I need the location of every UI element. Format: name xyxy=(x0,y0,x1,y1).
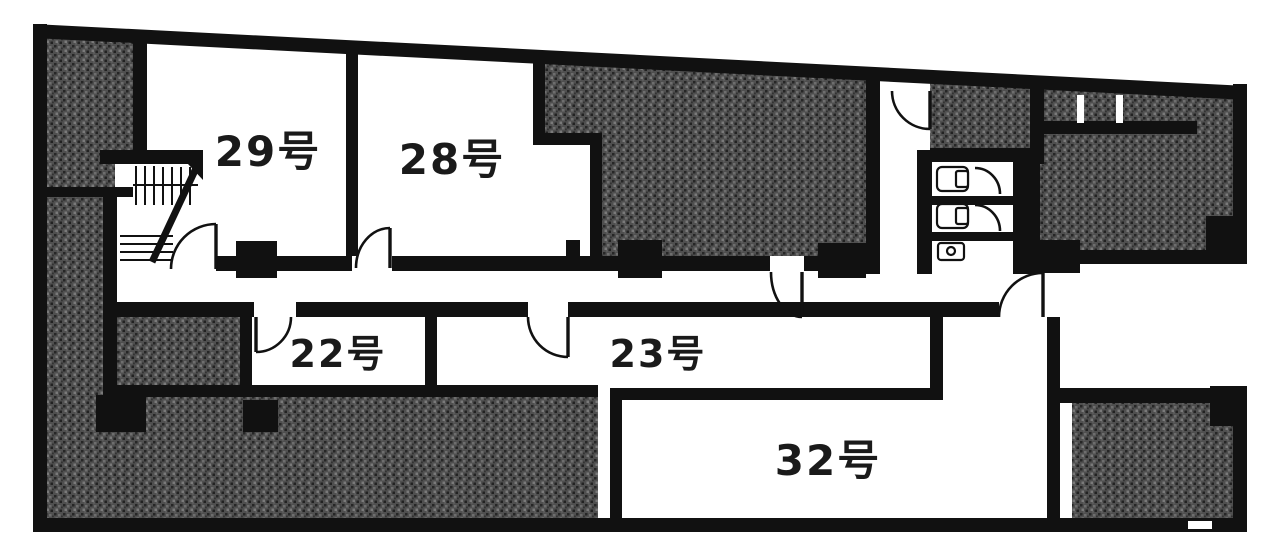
wall-28-right-upper xyxy=(533,57,545,143)
toilet-tank-1 xyxy=(956,171,968,187)
corridor-top-wall xyxy=(216,256,866,271)
wall-room29-left xyxy=(133,40,147,154)
pillar-bottomleft-2 xyxy=(243,400,278,432)
wall-28-right-lower xyxy=(590,133,602,258)
opening-corridor-mid xyxy=(770,256,804,271)
wall-left-column xyxy=(103,197,117,397)
room-23-label: 23号 xyxy=(610,335,707,373)
wall-below-hatch-topleft xyxy=(33,187,133,197)
toilet-fixtures xyxy=(937,167,968,260)
window-slit-2 xyxy=(1116,95,1123,123)
room-29-label: 29号 xyxy=(215,131,321,173)
hatch-bottom-right xyxy=(1072,403,1233,518)
wall-29-28 xyxy=(346,48,358,258)
pillar-bottomleft-1 xyxy=(96,395,146,432)
hatch-left-column xyxy=(47,197,103,518)
opening-room22 xyxy=(254,302,296,317)
wall-slab-top xyxy=(115,385,598,397)
pillar-corridor-1 xyxy=(236,241,277,278)
wall-22-left xyxy=(240,317,252,390)
window-slit-1 xyxy=(1077,95,1084,123)
pillar-bottomright xyxy=(1210,386,1247,426)
outer-wall-left xyxy=(33,24,47,532)
bottom-wall-notch xyxy=(1188,521,1212,529)
hatch-left-of-22 xyxy=(115,317,240,390)
room-32-connector xyxy=(943,317,1047,400)
hatch-top-right xyxy=(1044,89,1233,250)
floor-plan: 29号 28号 22号 23号 32号 xyxy=(0,0,1280,540)
wall-lobby-left xyxy=(866,78,880,274)
wall-23-right xyxy=(930,317,943,400)
wall-22-23 xyxy=(425,317,437,390)
opening-room32-connector xyxy=(999,302,1043,317)
toilet-tank-2 xyxy=(956,208,968,224)
wall-stair-top xyxy=(100,150,203,164)
pillar-corridor-4 xyxy=(1020,240,1080,273)
pillar-corridor-2 xyxy=(618,240,662,278)
toilet-lobby-floor xyxy=(880,86,917,278)
pillar-28-stop xyxy=(566,240,580,262)
wall-stalls-left xyxy=(917,150,932,274)
wall-32-top xyxy=(610,388,943,400)
pillar-corridor-3 xyxy=(818,243,866,278)
floor-plan-drawing xyxy=(0,0,1280,540)
pillar-topright-corner xyxy=(1206,216,1247,264)
opening-room23 xyxy=(528,302,568,317)
room-32-label: 32号 xyxy=(775,440,881,482)
wall-32-left xyxy=(610,397,622,523)
room-22-label: 22号 xyxy=(290,335,387,373)
wall-bottomright-top xyxy=(1060,388,1233,403)
hatch-bottom-left-slab xyxy=(103,397,598,518)
sink-drain xyxy=(947,247,955,255)
wall-connector-right xyxy=(1047,317,1060,523)
wall-stall-divider-2 xyxy=(932,232,1013,241)
wall-topright-left xyxy=(1030,84,1044,164)
outer-wall-bottom xyxy=(33,518,1247,532)
room-28-label: 28号 xyxy=(399,139,505,181)
